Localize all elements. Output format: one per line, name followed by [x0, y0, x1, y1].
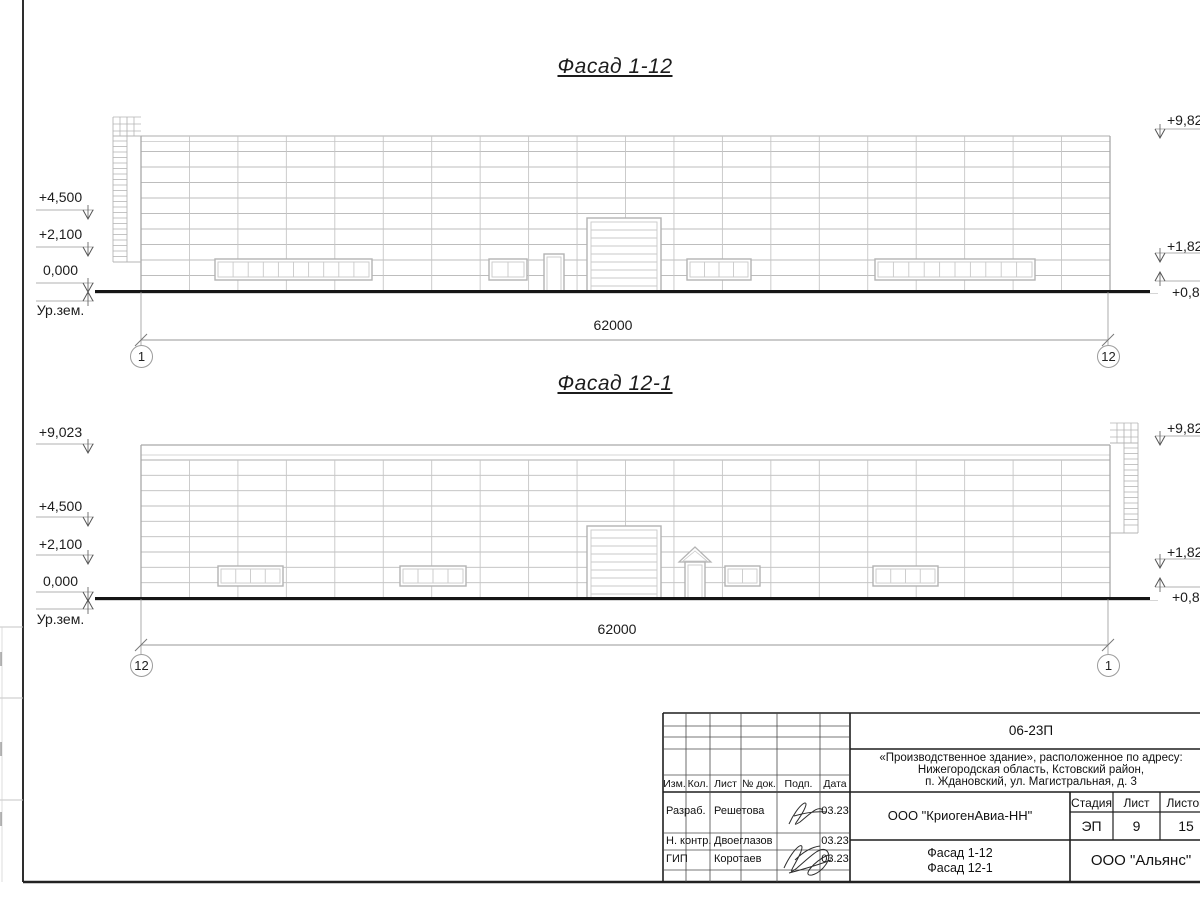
axis-bubble: 12 [1097, 345, 1120, 368]
elevation-label: +0,82 [1172, 589, 1200, 605]
elevation-label: +9,82 [1167, 420, 1200, 436]
axis-bubble: 1 [1097, 654, 1120, 677]
elevation-label: +0,82 [1172, 284, 1200, 300]
project-address-line2: Нижегородская область, Кстовский район, [850, 764, 1200, 776]
header-kol: Кол. [686, 778, 710, 790]
facade-12-1 [36, 423, 1200, 654]
dimension-text: 62000 [567, 621, 667, 637]
project-address-line1: «Производственное здание», расположенное… [850, 752, 1200, 764]
header-podp: Подп. [777, 778, 820, 790]
elevation-label: +1,82 [1167, 238, 1200, 254]
role-razrab: Разраб. [666, 805, 706, 817]
ground-level-label: Ур.зем. [33, 611, 88, 627]
elevation-label: +1,82 [1167, 544, 1200, 560]
sheet-value: 9 [1113, 818, 1160, 834]
company-name: ООО "КриогенАвиа-НН" [850, 808, 1070, 823]
date-razrab: 03.23 [820, 805, 850, 817]
facade-1-12 [36, 117, 1200, 346]
header-stage: Стадия [1070, 796, 1113, 810]
name-razrab: Решетова [714, 805, 764, 817]
date-nkontr: 03.23 [820, 835, 850, 847]
elevation-label: +9,023 [33, 424, 88, 440]
sheet-content-line2: Фасад 12-1 [850, 861, 1070, 875]
role-gip: ГИП [666, 853, 688, 865]
ground-level-label: Ур.зем. [33, 302, 88, 318]
header-ndok: № док. [741, 778, 777, 790]
role-nkontr: Н. контр. [666, 835, 711, 847]
doc-code: 06-23П [850, 723, 1200, 738]
elevation-label: 0,000 [33, 262, 88, 278]
axis-bubble: 12 [130, 654, 153, 677]
facade2-title: Фасад 12-1 [470, 372, 760, 396]
header-data: Дата [820, 778, 850, 790]
elevation-label: 0,000 [33, 573, 88, 589]
sheet-content-line1: Фасад 1-12 [850, 846, 1070, 860]
elevation-label: +4,500 [33, 189, 88, 205]
name-nkontr: Двоеглазов [714, 835, 772, 847]
header-izm: Изм. [663, 778, 686, 790]
elevation-label: +2,100 [33, 226, 88, 242]
org-name: ООО "Альянс" [1070, 852, 1200, 869]
axis-bubble: 1 [130, 345, 153, 368]
header-list: Лист [710, 778, 741, 790]
elevation-label: +4,500 [33, 498, 88, 514]
header-sheets: Листов [1160, 796, 1200, 810]
sheets-value: 15 [1160, 818, 1200, 834]
facade1-title: Фасад 1-12 [470, 55, 760, 79]
elevation-label: +2,100 [33, 536, 88, 552]
stage-value: ЭП [1070, 818, 1113, 834]
name-gip: Коротаев [714, 853, 762, 865]
drawing-sheet: Фасад 1-12 +4,500 +2,100 0,000 Ур.зем. +… [0, 0, 1200, 900]
date-gip: 03.23 [820, 853, 850, 865]
project-address-line3: п. Ждановский, ул. Магистральная, д. 3 [850, 776, 1200, 788]
dimension-text: 62000 [563, 317, 663, 333]
header-sheet: Лист [1113, 796, 1160, 810]
elevation-label: +9,82 [1167, 112, 1200, 128]
